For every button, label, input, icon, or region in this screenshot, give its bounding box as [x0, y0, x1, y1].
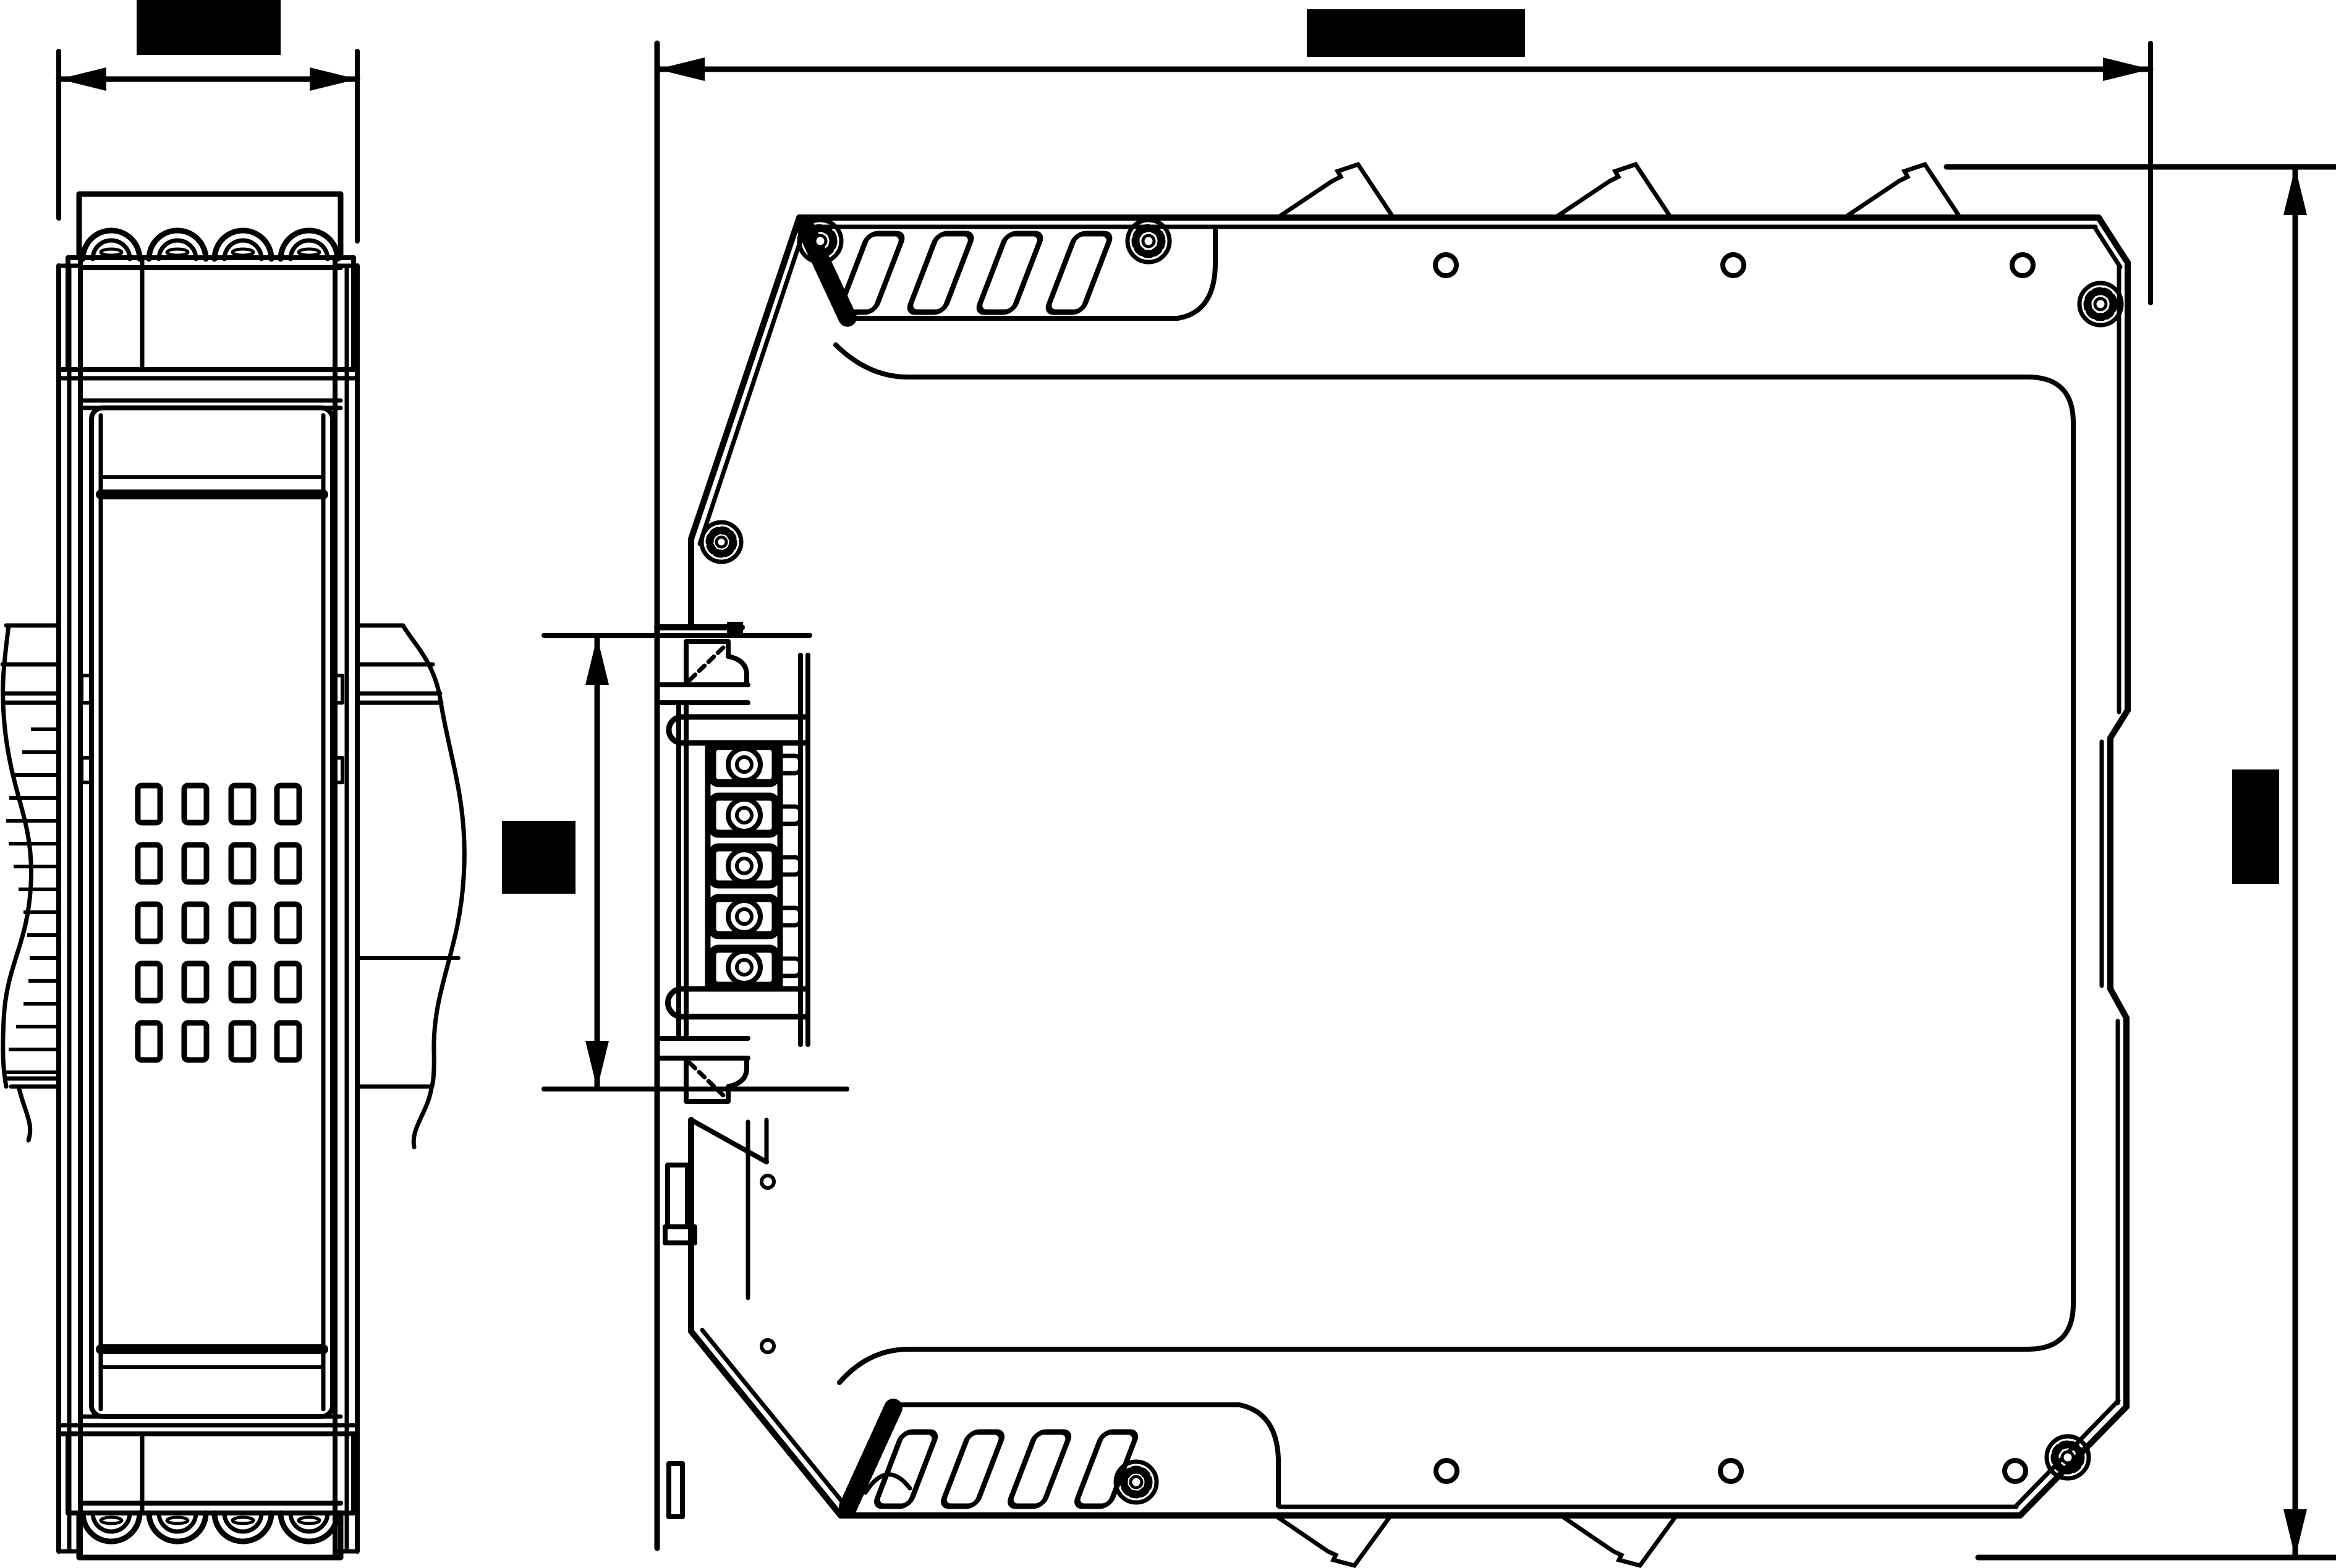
dim-label-redacted-side-width: [1307, 9, 1525, 57]
technical-drawing: Technical dimensional drawing of a DIN-r…: [0, 0, 2336, 1568]
dim-label-redacted-front-width: [137, 0, 281, 55]
dim-label-redacted-claw-height: [502, 821, 576, 894]
corner-screw-rosette-top-left: [702, 522, 741, 562]
drawing-sheet: Technical dimensional drawing of a DIN-r…: [0, 0, 2336, 1568]
screw-rosette: [799, 220, 841, 262]
corner-screw-rosette-top-right: [2079, 283, 2122, 325]
corner-screw-rosette-bottom-right: [2047, 1436, 2089, 1478]
dim-label-redacted-side-height: [2232, 769, 2279, 884]
screw-rosette: [1116, 1462, 1157, 1502]
screw-rosette: [1128, 220, 1170, 262]
